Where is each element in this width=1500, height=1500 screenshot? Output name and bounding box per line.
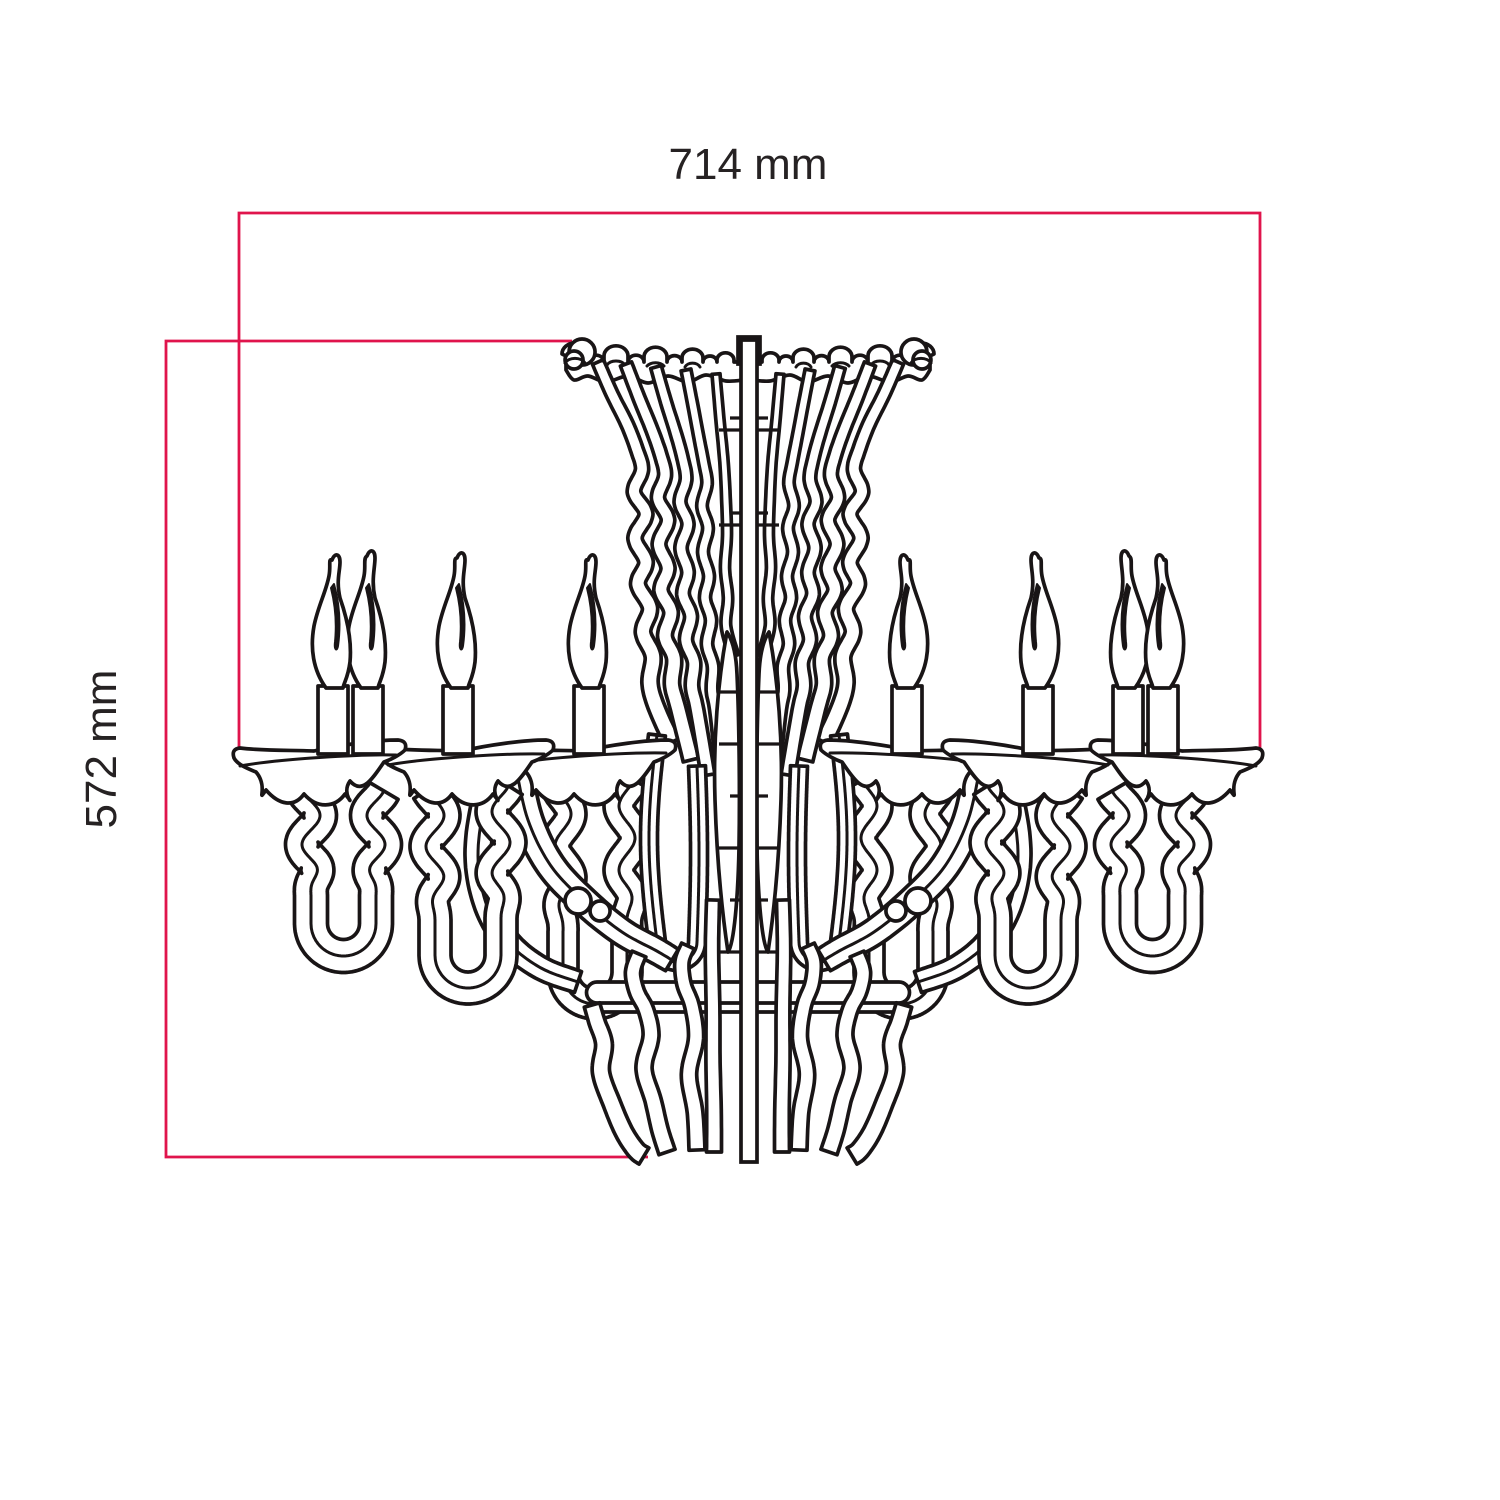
svg-text:572 mm: 572 mm [77,670,126,829]
svg-text:714 mm: 714 mm [669,140,828,189]
